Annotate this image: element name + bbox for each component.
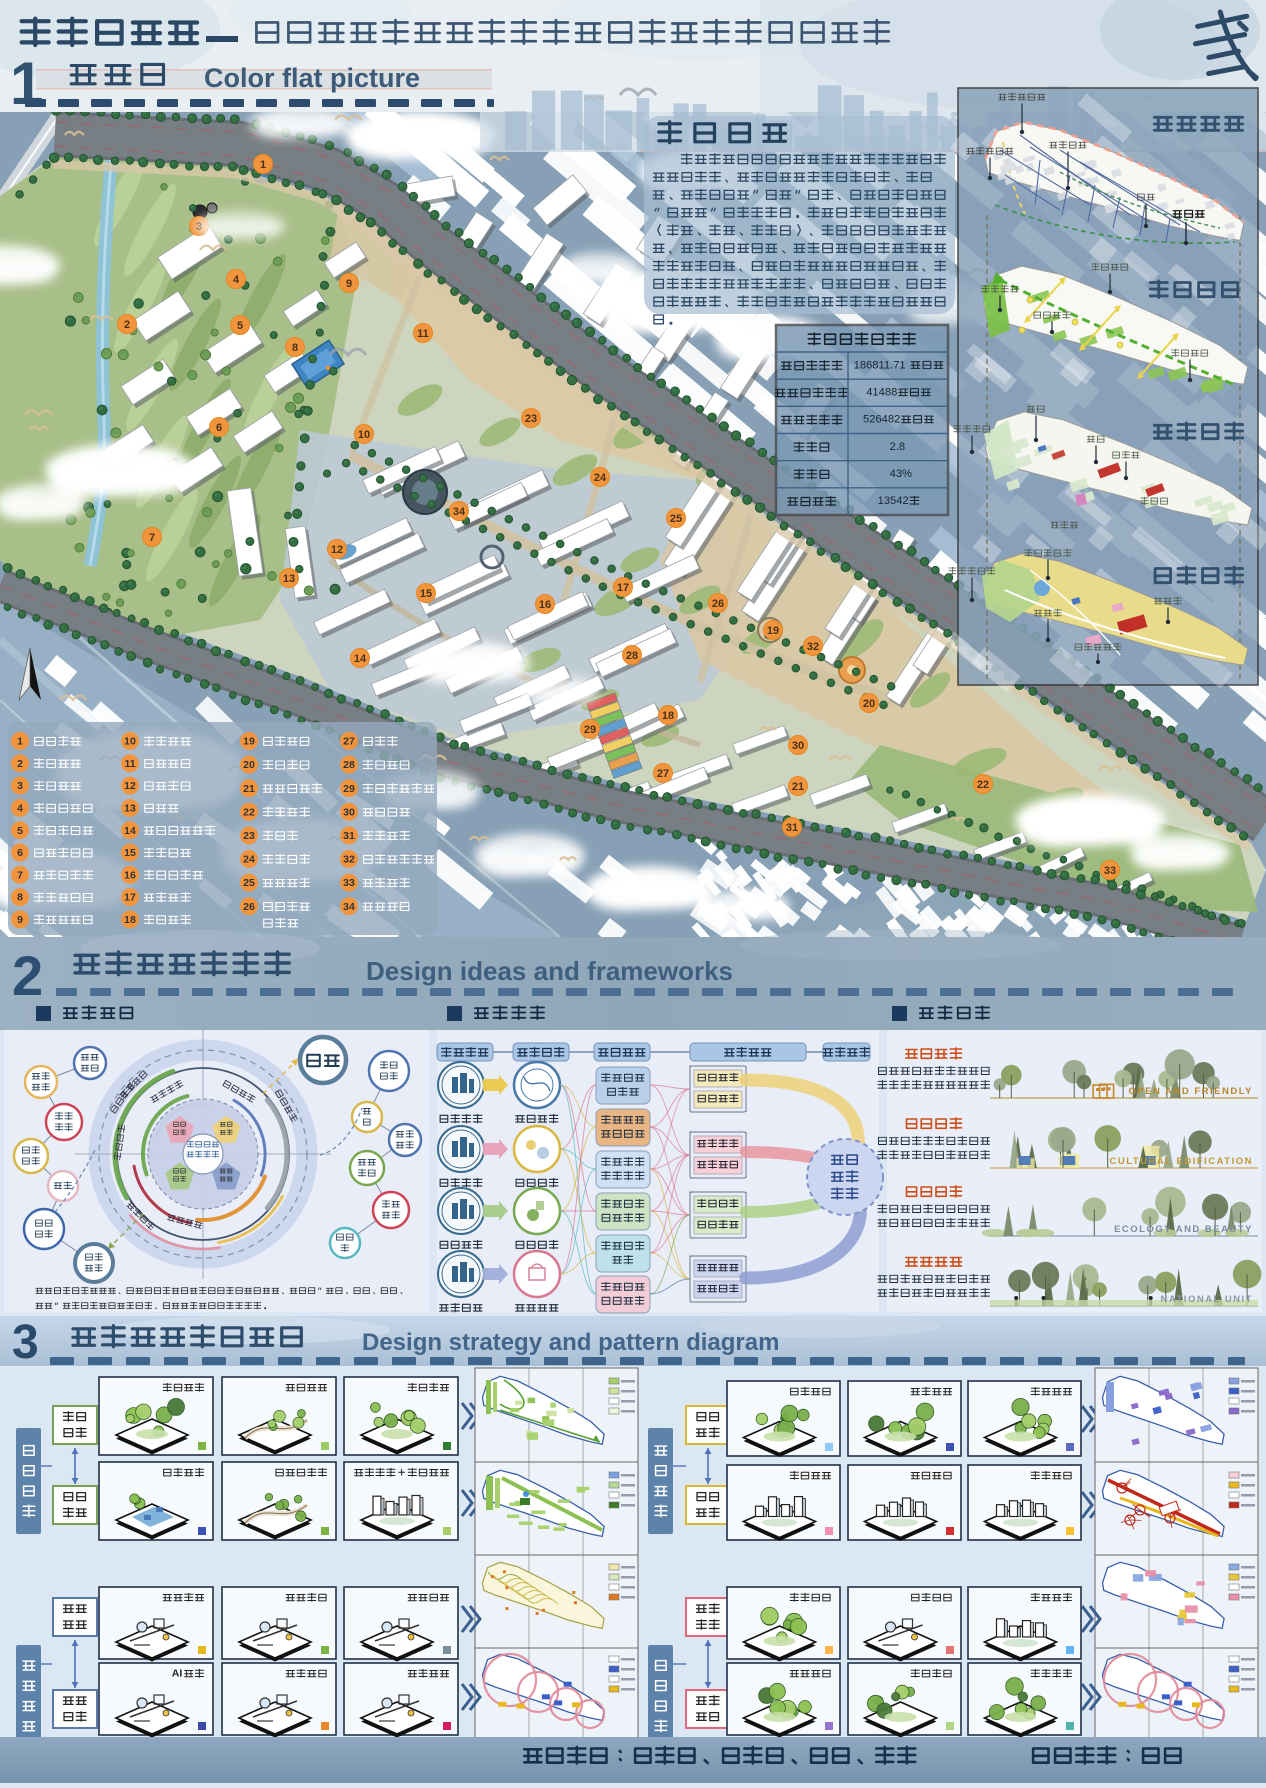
svg-text:22: 22	[243, 806, 255, 818]
svg-text:186811.71: 186811.71	[854, 359, 906, 371]
svg-text:Design ideas and frameworks: Design ideas and frameworks	[366, 956, 733, 986]
svg-text:10: 10	[124, 736, 136, 748]
svg-text:526482: 526482	[863, 414, 900, 426]
svg-text:8: 8	[17, 892, 23, 904]
svg-text:30: 30	[343, 806, 355, 818]
svg-text:25: 25	[243, 877, 255, 889]
svg-text:4: 4	[233, 274, 240, 286]
svg-text:16: 16	[539, 599, 551, 611]
svg-text:12: 12	[331, 544, 343, 556]
svg-text:34: 34	[453, 506, 466, 518]
svg-text:26: 26	[712, 598, 724, 610]
svg-text:15: 15	[124, 847, 136, 859]
svg-text:27: 27	[657, 768, 669, 780]
svg-text:OPEN AND FRIENDLY: OPEN AND FRIENDLY	[1128, 1086, 1253, 1097]
svg-text:13: 13	[124, 803, 136, 815]
svg-text:24: 24	[594, 472, 607, 484]
svg-text:5: 5	[17, 825, 23, 837]
svg-text:18: 18	[662, 710, 674, 722]
svg-text:Color flat picture: Color flat picture	[204, 63, 420, 93]
svg-text:27: 27	[343, 736, 355, 748]
svg-text:31: 31	[343, 830, 355, 842]
svg-text:31: 31	[786, 822, 798, 834]
svg-text:11: 11	[124, 758, 135, 770]
svg-text:4: 4	[17, 803, 23, 815]
svg-text:17: 17	[124, 892, 136, 904]
svg-text:10: 10	[358, 429, 370, 441]
svg-text:2: 2	[124, 319, 130, 331]
svg-text:28: 28	[626, 650, 638, 662]
svg-text:1: 1	[17, 736, 23, 748]
svg-text:33: 33	[343, 877, 355, 889]
svg-text:2: 2	[17, 758, 23, 770]
svg-text:NATIONAL UNIT: NATIONAL UNIT	[1160, 1294, 1253, 1305]
svg-text:6: 6	[17, 847, 23, 859]
svg-text:2: 2	[12, 944, 43, 1007]
svg-text:22: 22	[977, 779, 989, 791]
svg-text:AI: AI	[172, 1668, 183, 1680]
svg-text:14: 14	[124, 825, 136, 837]
svg-text:21: 21	[243, 783, 255, 795]
svg-text:2.8: 2.8	[890, 441, 906, 453]
svg-text:26: 26	[243, 901, 255, 913]
svg-text:17: 17	[617, 582, 629, 594]
svg-text:13542: 13542	[878, 495, 909, 507]
svg-text:14: 14	[354, 653, 367, 665]
svg-text:16: 16	[124, 869, 136, 881]
svg-text:33: 33	[1104, 865, 1116, 877]
svg-text:3: 3	[12, 1316, 39, 1369]
svg-text:ECOLOGY AND BEAUTY: ECOLOGY AND BEAUTY	[1114, 1224, 1253, 1235]
svg-text:20: 20	[243, 759, 255, 771]
svg-text:Design strategy and pattern di: Design strategy and pattern diagram	[362, 1329, 779, 1356]
svg-text:32: 32	[807, 641, 819, 653]
svg-text:CULTURAL EDIFICATION: CULTURAL EDIFICATION	[1110, 1156, 1253, 1167]
svg-text:32: 32	[343, 854, 355, 866]
svg-text:29: 29	[343, 783, 355, 795]
svg-text:23: 23	[525, 413, 537, 425]
svg-text:9: 9	[346, 278, 352, 290]
svg-text:43%: 43%	[890, 468, 912, 480]
svg-text:1: 1	[260, 159, 266, 171]
svg-text:29: 29	[584, 724, 596, 736]
svg-text:12: 12	[124, 780, 136, 792]
svg-text:7: 7	[149, 532, 155, 544]
svg-text:19: 19	[767, 625, 779, 637]
svg-text:18: 18	[124, 914, 136, 926]
svg-text:11: 11	[417, 328, 429, 340]
svg-text:19: 19	[243, 736, 255, 748]
svg-text:41488: 41488	[866, 386, 897, 398]
svg-text:20: 20	[863, 698, 875, 710]
svg-text:21: 21	[792, 781, 804, 793]
svg-text:15: 15	[420, 588, 432, 600]
svg-text:7: 7	[17, 869, 23, 881]
svg-text:30: 30	[792, 740, 804, 752]
svg-text:25: 25	[670, 513, 682, 525]
svg-text:6: 6	[216, 422, 222, 434]
svg-text:9: 9	[17, 914, 23, 926]
svg-text:13: 13	[283, 573, 295, 585]
svg-text:3: 3	[17, 780, 23, 792]
svg-text:5: 5	[237, 320, 243, 332]
svg-text:8: 8	[292, 342, 298, 354]
svg-text:23: 23	[243, 830, 255, 842]
svg-text:34: 34	[343, 901, 355, 913]
svg-text:24: 24	[243, 854, 255, 866]
svg-text:28: 28	[343, 759, 355, 771]
